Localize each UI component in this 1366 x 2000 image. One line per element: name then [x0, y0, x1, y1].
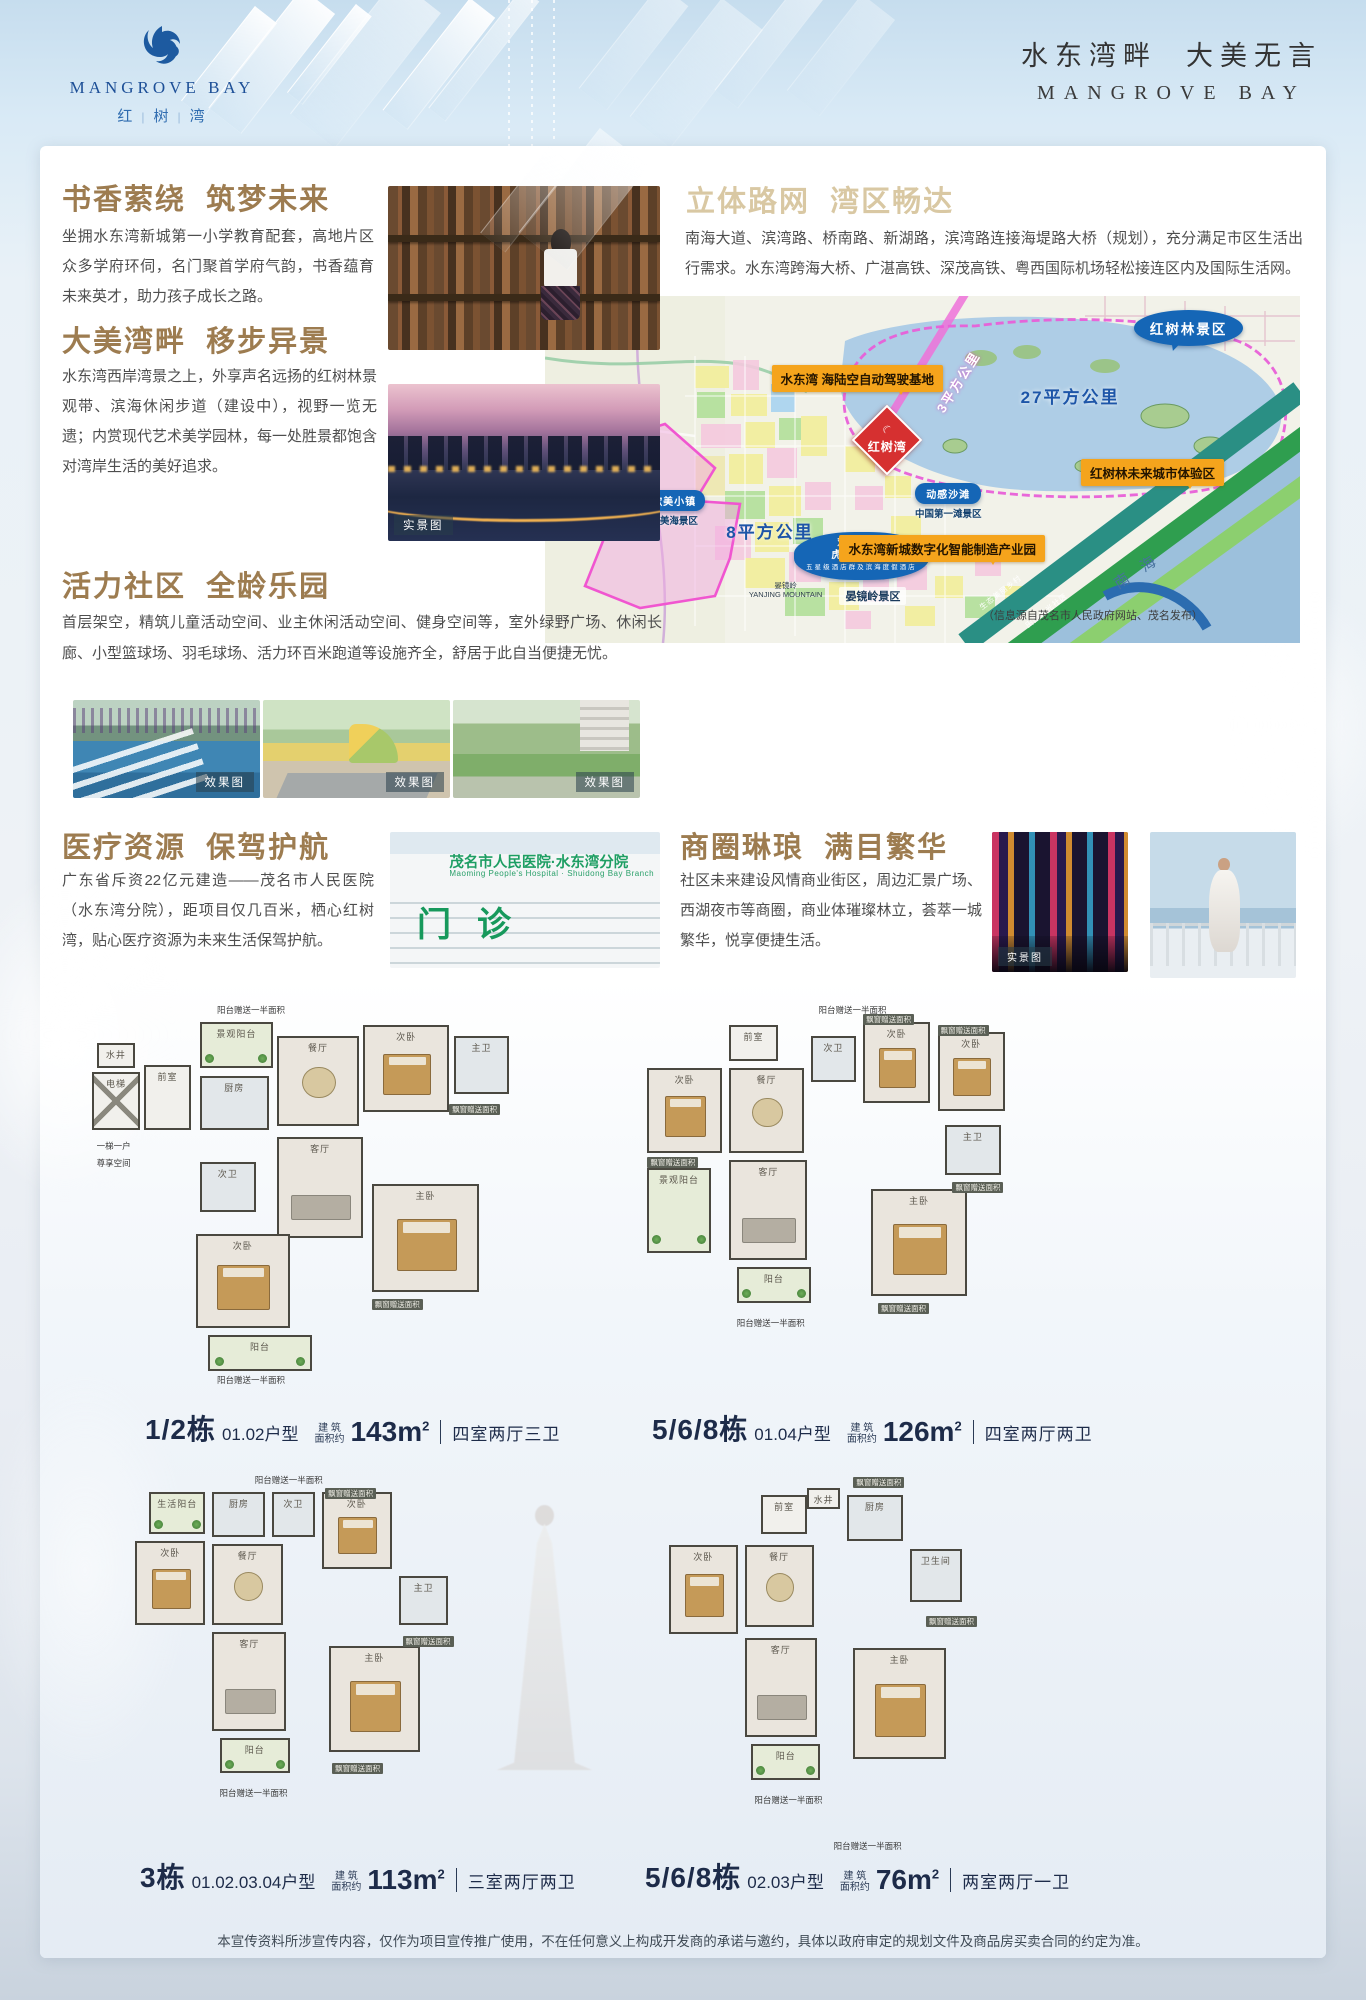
plan-room: 客厅 [212, 1632, 286, 1731]
map-label: 晏镜岭YANJING MOUNTAIN [749, 581, 822, 599]
slogan-en: MANGROVE BAY [1021, 82, 1322, 105]
room-layout: 三室两厅两卫 [468, 1868, 576, 1896]
floorplan-143: 水井电梯前室景观阳台餐厅次卧主卫厨房次卫客厅主卧次卧阳台阳台赠送一半面积一梯一户… [88, 1018, 518, 1378]
section-title-business: 商圈琳琅 满目繁华 [680, 824, 948, 866]
plan-room: 客厅 [745, 1638, 818, 1738]
plan-room: 次卫 [272, 1492, 314, 1538]
plan-room: 厨房 [200, 1076, 269, 1130]
bead-string-decoration [553, 0, 555, 140]
plan-annotation: 飘窗赠送面积 [853, 1477, 904, 1488]
room-layout: 四室两厅三卫 [452, 1420, 560, 1448]
plan-room: 主卫 [399, 1576, 448, 1625]
hospital-sign-en: Maoming People's Hospital · Shuidong Bay… [449, 869, 654, 878]
plan-annotation: 阳台赠送一半面积 [754, 1794, 822, 1806]
bookshelf-decoration [388, 235, 660, 242]
plan-annotation: 飘窗赠送面积 [449, 1104, 500, 1115]
plan-annotation: 一梯一户 [97, 1140, 131, 1152]
plan-room: 主卫 [945, 1125, 1001, 1175]
building-number: 1/2栋 [145, 1408, 216, 1448]
floorplan-caption-3: 3栋 01.02.03.04户型 建 筑面积约 113m2 三室两厅两卫 [140, 1856, 576, 1896]
plan-room: 主卧 [372, 1184, 480, 1292]
area-label: 建 筑面积约 [331, 1871, 361, 1893]
photo-tag: 效果图 [386, 772, 445, 792]
crystal-shard-decoration [383, 0, 496, 130]
plan-annotation: 尊享空间 [97, 1157, 131, 1169]
building-number: 5/6/8栋 [652, 1408, 748, 1448]
brand-logo: MANGROVE BAY 红|树|湾 [52, 20, 272, 126]
map-label: 动感沙滩中国第一滩景区 [915, 483, 982, 520]
section-body-medical: 广东省斥资22亿元建造——茂名市人民医院（水东湾分院），距项目仅几百米，栖心红树… [62, 866, 374, 956]
lawn-photo: 效果图 [453, 700, 640, 798]
photo-tag: 实景图 [394, 515, 453, 535]
plan-annotation: 阳台赠送一半面积 [217, 1374, 285, 1386]
map-label: 晏镜岭景区 [839, 587, 906, 605]
header: MANGROVE BAY 红|树|湾 水东湾畔 大美无言 MANGROVE BA… [0, 0, 1366, 146]
plan-room: 主卫 [454, 1036, 510, 1094]
plan-room: 餐厅 [729, 1068, 803, 1153]
brochure-page: MANGROVE BAY 红|树|湾 水东湾畔 大美无言 MANGROVE BA… [0, 0, 1366, 2000]
plan-room: 客厅 [277, 1137, 363, 1238]
crystal-shard-decoration [715, 0, 826, 108]
brand-name-cn: 红|树|湾 [52, 105, 272, 126]
bay-photo: 实景图 [388, 384, 660, 541]
plan-room: 客厅 [729, 1160, 807, 1260]
hospital-photo: 茂名市人民医院·水东湾分院 Maoming People's Hospital … [390, 832, 660, 968]
map-label: 红树林未来城市体验区 [1081, 459, 1224, 486]
plan-annotation: 飘窗赠送面积 [878, 1303, 929, 1314]
plan-room: 次卧 [938, 1032, 1005, 1110]
area-value: 113m2 [367, 1864, 444, 1896]
caption-divider [950, 1868, 951, 1892]
floorplan-caption-2: 5/6/8栋 01.04户型 建 筑面积约 126m2 四室两厅两卫 [652, 1408, 1093, 1448]
map-label: （信息源自茂名市人民政府网站、茂名发布） [983, 607, 1203, 623]
area-label: 建 筑面积约 [840, 1871, 870, 1893]
plan-room: 次卧 [322, 1492, 392, 1569]
room-layout: 四室两厅两卫 [985, 1420, 1093, 1448]
plan-annotation: 飘窗赠送面积 [926, 1616, 977, 1627]
plan-annotation: 阳台赠送一半面积 [737, 1317, 805, 1329]
area-value: 126m2 [883, 1416, 962, 1448]
plan-room: 次卫 [811, 1036, 856, 1082]
unit-number: 01.04户型 [754, 1420, 831, 1448]
building-number: 5/6/8栋 [645, 1856, 741, 1896]
area-label: 建 筑面积约 [847, 1423, 877, 1445]
building-number: 3栋 [140, 1856, 186, 1896]
plan-room: 次卫 [200, 1162, 256, 1212]
caption-divider [973, 1420, 974, 1444]
plan-room: 前室 [144, 1065, 191, 1130]
section-body-roads: 南海大道、滨湾路、桥南路、新湖路，滨湾路连接海堤路大桥（规划），充分满足市区生活… [685, 224, 1303, 284]
plan-annotation: 阳台赠送一半面积 [220, 1787, 288, 1799]
floorplan-caption-1: 1/2栋 01.02户型 建 筑面积约 143m2 四室两厅三卫 [145, 1408, 560, 1448]
plan-room: 水井 [97, 1043, 136, 1068]
separator: | [171, 110, 190, 124]
floorplan-caption-4: 5/6/8栋 02.03户型 建 筑面积约 76m2 两室两厅一卫 [645, 1856, 1070, 1896]
court-stripes-decoration [73, 728, 209, 798]
photo-tag: 效果图 [196, 772, 255, 792]
map-label: 27平方公里 [1021, 383, 1120, 408]
crystal-shard-decoration [428, 0, 539, 121]
plan-annotation: 飘窗赠送面积 [403, 1636, 454, 1647]
plan-annotation: 飘窗赠送面积 [332, 1763, 383, 1774]
balcony-photo [1150, 832, 1296, 978]
plan-annotation: 阳台赠送一半面积 [217, 1004, 285, 1016]
plan-room: 次卧 [135, 1541, 205, 1625]
night-market-photo: 实景图 [992, 832, 1128, 972]
floorplan-76: 水井前室厨房次卧餐厅卫生间客厅主卧阳台飘窗赠送面积飘窗赠送面积阳台赠送一半面积阳… [662, 1488, 992, 1844]
section-title-medical: 医疗资源 保驾护航 [62, 824, 330, 866]
slogan-cn: 水东湾畔 大美无言 [1021, 34, 1322, 73]
section-body-community: 首层架空，精筑儿童活动空间、业主休闲活动空间、健身空间等，室外绿野广场、休闲长廊… [62, 607, 662, 669]
map-label: 红树湾 [858, 411, 916, 469]
crystal-shard-decoration [579, 0, 689, 110]
section-title-community: 活力社区 全龄乐园 [62, 563, 330, 605]
plan-room: 餐厅 [277, 1036, 359, 1126]
caption-divider [440, 1420, 441, 1444]
basketball-court-photo: 效果图 [73, 700, 260, 798]
crystal-shard-decoration [290, 0, 441, 149]
room-layout: 两室两厅一卫 [962, 1868, 1070, 1896]
plan-room: 餐厅 [745, 1545, 814, 1627]
plan-annotation: 阳台赠送一半面积 [255, 1474, 323, 1486]
floorplan-113: 生活阳台厨房次卫次卧次卧餐厅主卫客厅主卧阳台阳台赠送一半面积飘窗赠送面积飘窗赠送… [128, 1488, 480, 1840]
plan-annotation: 飘窗赠送面积 [647, 1157, 698, 1168]
plan-room: 次卧 [647, 1068, 721, 1153]
plan-annotation: 阳台赠送一半面积 [834, 1840, 902, 1852]
plan-annotation: 飘窗赠送面积 [863, 1014, 914, 1025]
plan-room: 阳台 [208, 1335, 311, 1371]
area-value: 143m2 [350, 1416, 429, 1448]
bride-silhouette-decoration [497, 1505, 592, 1770]
plan-room: 次卧 [669, 1545, 738, 1634]
area-value: 76m2 [876, 1864, 939, 1896]
crystal-shard-decoration [630, 0, 763, 148]
section-body-bay: 水东湾西岸湾景之上，外享声名远扬的红树林景观带、滨海休闲步道（建设中），视野一览… [62, 362, 377, 482]
header-slogan: 水东湾畔 大美无言 MANGROVE BAY [1021, 34, 1322, 105]
brand-char: 红 [117, 108, 134, 125]
plan-room: 厨房 [847, 1495, 903, 1541]
area-label: 建 筑面积约 [314, 1423, 344, 1445]
playground-photo: 效果图 [263, 700, 450, 798]
photo-tag: 效果图 [576, 772, 635, 792]
disclaimer-text: 本宣传资料所涉宣传内容，仅作为项目宣传推广使用，不在任何意义上构成开发商的承诺与… [0, 1930, 1366, 1950]
bookshelf-decoration [388, 294, 660, 301]
crystal-shard-decoration [287, 4, 372, 105]
plan-annotation: 飘窗赠送面积 [325, 1488, 376, 1499]
plan-room: 景观阳台 [200, 1022, 273, 1069]
plan-annotation: 飘窗赠送面积 [372, 1299, 423, 1310]
plan-room: 主卧 [853, 1648, 945, 1758]
plan-annotation: 飘窗赠送面积 [952, 1182, 1003, 1193]
girl-figure [538, 229, 584, 344]
floorplan-126: 前室次卧餐厅次卫次卧次卧主卫客厅主卧景观阳台阳台阳台赠送一半面积飘窗赠送面积飘窗… [640, 1018, 1012, 1374]
section-title-roads: 立体路网 湾区畅达 [686, 178, 954, 220]
bead-string-decoration [508, 0, 510, 150]
map-label: 红树林景区 [1134, 310, 1244, 346]
unit-number: 01.02.03.04户型 [192, 1868, 316, 1896]
lights-decoration [388, 466, 660, 472]
map-label: 水东湾 海陆空自动驾驶基地 [772, 365, 943, 392]
plan-room: 次卧 [196, 1234, 291, 1328]
hospital-sign-big: 门诊 [417, 897, 537, 946]
plan-room: 主卧 [871, 1189, 968, 1296]
brand-char: 树 [153, 108, 170, 125]
fence-decoration [73, 708, 260, 733]
unit-number: 01.02户型 [222, 1420, 299, 1448]
plan-room: 生活阳台 [149, 1492, 205, 1534]
plan-room: 次卧 [863, 1022, 930, 1104]
section-body-education: 坐拥水东湾新城第一小学教育配套，高地片区众多学府环伺，名门聚首学府气韵，书香蕴育… [62, 222, 374, 312]
plan-room: 卫生间 [910, 1549, 963, 1602]
map-label: 南 海 [1110, 547, 1165, 593]
separator: | [134, 110, 153, 124]
plan-room: 次卧 [363, 1025, 449, 1111]
slide-decoration [349, 724, 398, 763]
caption-divider [456, 1868, 457, 1892]
brand-char: 湾 [190, 108, 207, 125]
plan-annotation: 飘窗赠送面积 [938, 1025, 989, 1036]
phoenix-bird-icon [52, 20, 272, 72]
photo-tag: 实景图 [998, 947, 1052, 966]
plan-room: 阳台 [220, 1738, 290, 1773]
section-body-business: 社区未来建设风情商业街区，周边汇景广场、西湖夜市等商圈，商业体璀璨林立，荟萃一城… [680, 866, 982, 956]
library-photo [388, 186, 660, 350]
plan-room: 主卧 [329, 1646, 421, 1752]
section-title-education: 书香萦绕 筑梦未来 [62, 176, 330, 218]
plan-room: 前室 [761, 1495, 807, 1534]
building-decoration [580, 700, 629, 751]
plan-room: 景观阳台 [647, 1168, 710, 1253]
plan-room: 水井 [807, 1488, 840, 1509]
plan-room: 电梯 [92, 1072, 139, 1130]
unit-number: 02.03户型 [747, 1868, 824, 1896]
plan-room: 餐厅 [212, 1544, 282, 1625]
map-label: 水东湾新城数字化智能制造产业园 [839, 535, 1045, 562]
plan-room: 阳台 [737, 1267, 811, 1303]
brand-name-en: MANGROVE BAY [52, 78, 272, 98]
woman-figure [1205, 858, 1243, 951]
section-title-bay: 大美湾畔 移步异景 [62, 318, 330, 360]
plan-room: 厨房 [212, 1492, 265, 1538]
crystal-shard-decoration [787, 0, 895, 116]
plan-room: 前室 [729, 1025, 777, 1061]
plan-room: 阳台 [751, 1744, 820, 1780]
